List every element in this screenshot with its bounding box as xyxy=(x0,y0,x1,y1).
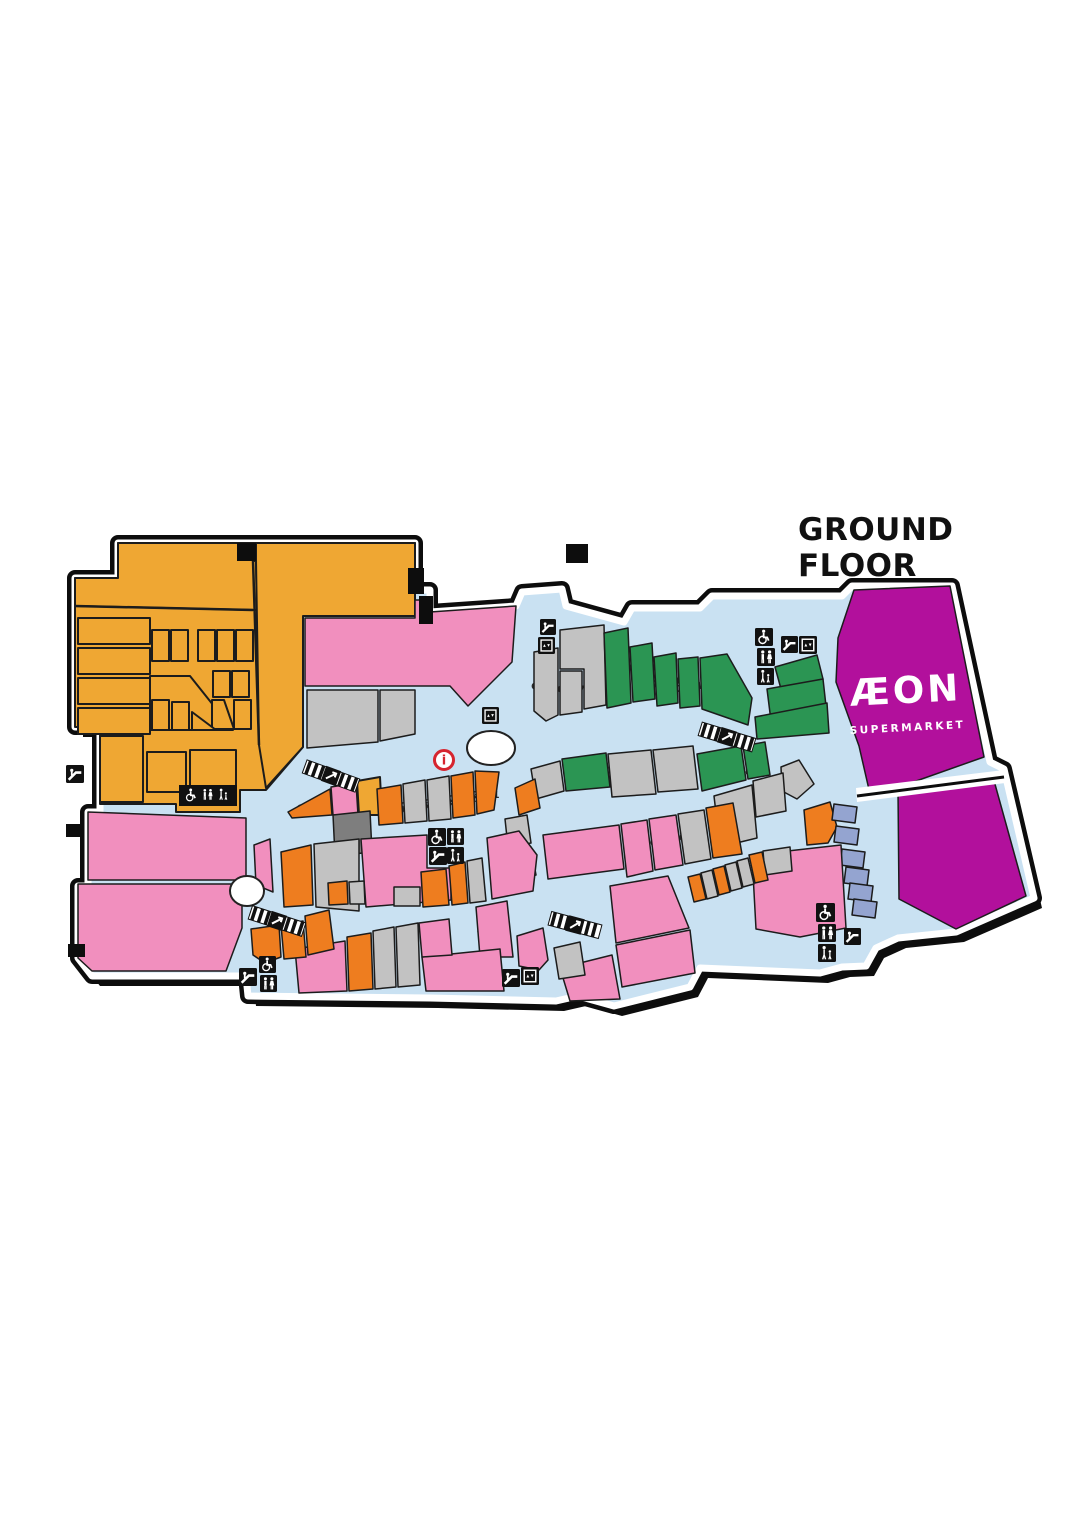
accessible-icon xyxy=(428,828,446,846)
restroom-icon xyxy=(818,924,836,942)
unit-G123[interactable] xyxy=(427,776,451,821)
unit-G110[interactable] xyxy=(654,653,678,706)
unit-G109A[interactable] xyxy=(604,628,631,708)
unit-G33[interactable] xyxy=(852,899,877,918)
accessible-icon xyxy=(259,956,276,973)
unit-G38[interactable] xyxy=(834,826,859,845)
aeon-logo: ÆONSUPERMARKET xyxy=(847,666,966,737)
unit-G137[interactable] xyxy=(100,736,143,802)
unit-G103[interactable] xyxy=(380,690,415,741)
unit-G42[interactable] xyxy=(763,847,792,875)
unit-GK11[interactable] xyxy=(213,671,230,697)
unit-G55[interactable] xyxy=(554,942,585,979)
accessible-icon xyxy=(755,628,773,646)
unit-G62[interactable] xyxy=(373,927,396,989)
unit-G116[interactable] xyxy=(653,746,698,792)
unit-G20[interactable] xyxy=(621,820,653,877)
unit-G5[interactable] xyxy=(281,845,313,907)
unit-G126[interactable] xyxy=(377,785,403,825)
unit-GK8[interactable] xyxy=(198,630,215,661)
floor-title: GROUND FLOOR xyxy=(798,512,1078,584)
courtyard-opening xyxy=(467,731,515,765)
unit-G135[interactable] xyxy=(78,678,150,704)
svg-text:i: i xyxy=(442,754,446,769)
nursery-icon xyxy=(447,847,464,864)
escalator-icon xyxy=(239,968,257,986)
unit-G60[interactable] xyxy=(419,919,452,957)
unit-G8[interactable] xyxy=(349,881,365,904)
escalator-icon xyxy=(502,969,520,987)
courtyard-opening xyxy=(230,876,264,906)
entrance-mark xyxy=(566,544,588,563)
unit-G15[interactable] xyxy=(467,858,486,903)
restroom-icon xyxy=(757,648,775,666)
page-root: G131G130G132G133G135G136G137G138G139GK7A… xyxy=(0,0,1080,1528)
unit-G57G58[interactable] xyxy=(476,901,513,957)
escalator-icon xyxy=(540,619,556,635)
unit-GK19[interactable] xyxy=(152,700,169,730)
unit-G13[interactable] xyxy=(449,862,468,905)
accessible-icon xyxy=(183,787,199,803)
accessible-icon xyxy=(816,903,835,922)
escalator-icon xyxy=(66,765,84,783)
unit-G56[interactable] xyxy=(517,928,548,970)
unit-G66[interactable] xyxy=(305,910,334,955)
restroom-icon xyxy=(200,787,215,802)
unit-GK18[interactable] xyxy=(172,702,189,730)
restroom-icon xyxy=(447,828,464,845)
unit-G21[interactable] xyxy=(649,815,683,870)
escalator-icon xyxy=(429,847,447,865)
unit-G109B[interactable] xyxy=(630,643,655,702)
restroom-icon xyxy=(260,975,277,992)
unit-G61[interactable] xyxy=(396,923,420,987)
entrance-mark xyxy=(237,543,256,561)
escalator-icon xyxy=(781,636,798,653)
unit-G63[interactable] xyxy=(347,933,373,991)
unit-G125[interactable] xyxy=(403,780,427,823)
unit-GK10[interactable] xyxy=(236,630,253,661)
unit-G7[interactable] xyxy=(328,881,348,905)
unit-G102[interactable] xyxy=(307,690,378,748)
nursery-icon xyxy=(818,944,836,962)
entrance-mark xyxy=(408,568,424,594)
unit-G1[interactable] xyxy=(78,884,242,971)
mall-floorplan-svg: G131G130G132G133G135G136G137G138G139GK7A… xyxy=(0,0,1080,1528)
unit-GK9[interactable] xyxy=(217,630,234,661)
unit-G122[interactable] xyxy=(451,772,475,818)
unit-G12[interactable] xyxy=(421,869,449,907)
unit-G106[interactable] xyxy=(534,648,558,721)
elevator-icon xyxy=(799,636,817,654)
elevator-icon xyxy=(482,707,499,724)
unit-G132[interactable] xyxy=(78,618,150,644)
elevator-icon xyxy=(521,967,539,985)
unit-GK13[interactable] xyxy=(234,700,251,729)
floor-plan-map: G131G130G132G133G135G136G137G138G139GK7A… xyxy=(0,0,1080,1528)
unit-G118[interactable] xyxy=(562,753,610,791)
unit-G37[interactable] xyxy=(840,849,865,868)
unit-G107[interactable] xyxy=(560,671,582,715)
unit-G2[interactable] xyxy=(88,812,246,880)
entrance-mark xyxy=(66,824,83,837)
aeon-name: ÆON xyxy=(849,666,963,715)
nursery-icon xyxy=(757,668,774,685)
nursery-icon xyxy=(216,787,231,802)
unit-G117[interactable] xyxy=(608,750,656,797)
unit-G19[interactable] xyxy=(543,825,624,879)
unit-GK12[interactable] xyxy=(232,671,249,697)
escalator-icon xyxy=(844,928,861,945)
elevator-icon xyxy=(538,637,555,654)
unit-G39[interactable] xyxy=(832,804,857,823)
unit-G11[interactable] xyxy=(394,887,420,906)
information-icon: i xyxy=(435,751,454,770)
entrance-mark xyxy=(68,944,85,957)
unit-G133[interactable] xyxy=(78,648,150,674)
entrance-mark xyxy=(419,596,433,624)
unit-GK7A[interactable] xyxy=(152,630,169,661)
unit-G26[interactable] xyxy=(753,773,786,817)
unit-G136[interactable] xyxy=(78,708,150,734)
unit-GK7B[interactable] xyxy=(171,630,188,661)
unit-G111[interactable] xyxy=(678,657,700,708)
